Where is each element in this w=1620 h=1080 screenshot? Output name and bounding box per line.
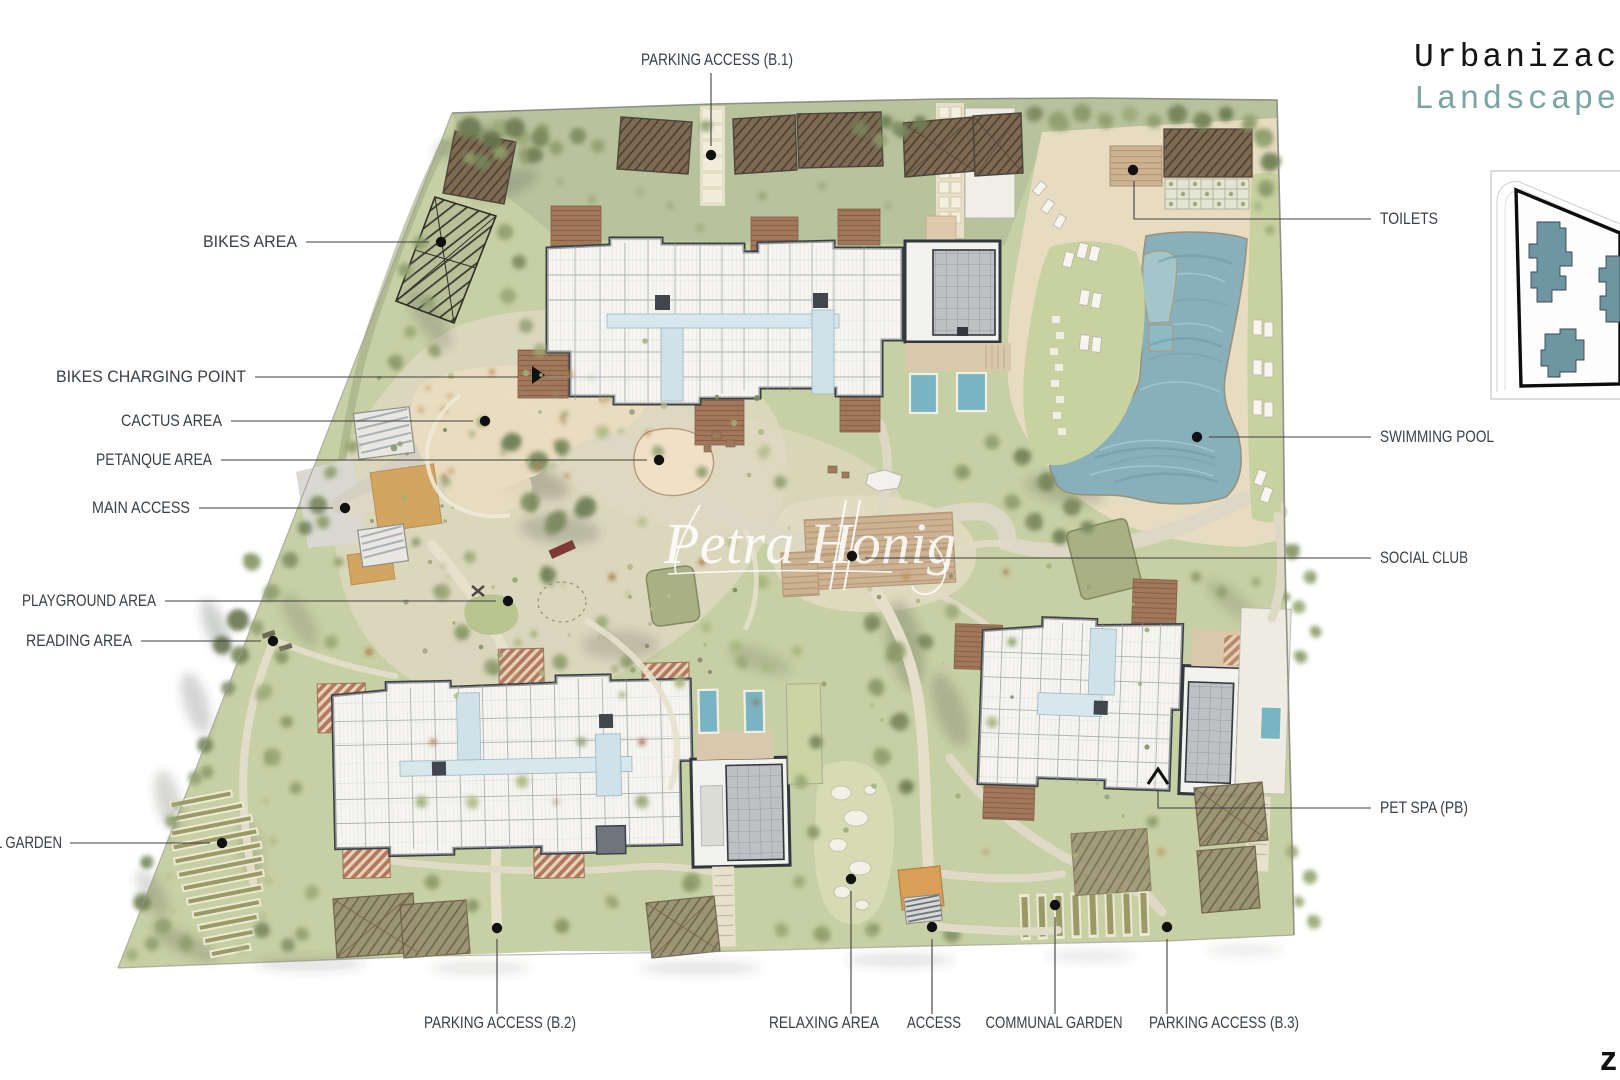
svg-text:PET SPA (PB): PET SPA (PB) — [1380, 798, 1468, 817]
svg-text:PARKING ACCESS (B.2): PARKING ACCESS (B.2) — [424, 1013, 576, 1032]
svg-text:READING AREA: READING AREA — [26, 631, 133, 650]
svg-text:BIKES CHARGING POINT: BIKES CHARGING POINT — [56, 367, 246, 386]
svg-text:Petra Honig: Petra Honig — [663, 511, 956, 576]
svg-text:ACCESS: ACCESS — [907, 1013, 961, 1032]
svg-text:BIKES AREA: BIKES AREA — [203, 232, 298, 251]
svg-text:TOILETS: TOILETS — [1380, 209, 1438, 228]
svg-text:SWIMMING POOL: SWIMMING POOL — [1380, 427, 1494, 446]
svg-text:COMMUNAL GARDEN: COMMUNAL GARDEN — [0, 833, 62, 852]
svg-text:RELAXING AREA: RELAXING AREA — [769, 1013, 880, 1032]
svg-text:CACTUS AREA: CACTUS AREA — [121, 411, 223, 430]
svg-text:SOCIAL CLUB: SOCIAL CLUB — [1380, 548, 1468, 567]
svg-text:z: z — [1600, 1040, 1617, 1078]
svg-text:Urbanizaci: Urbanizaci — [1414, 39, 1620, 76]
svg-text:Landscaped: Landscaped — [1414, 81, 1620, 118]
svg-text:PETANQUE AREA: PETANQUE AREA — [96, 450, 213, 469]
svg-text:PLAYGROUND AREA: PLAYGROUND AREA — [22, 591, 157, 610]
svg-text:COMMUNAL GARDEN: COMMUNAL GARDEN — [986, 1013, 1123, 1032]
svg-text:PARKING ACCESS (B.1): PARKING ACCESS (B.1) — [641, 50, 793, 69]
svg-text:MAIN ACCESS: MAIN ACCESS — [92, 498, 190, 517]
svg-text:PARKING ACCESS (B.3): PARKING ACCESS (B.3) — [1149, 1013, 1299, 1032]
